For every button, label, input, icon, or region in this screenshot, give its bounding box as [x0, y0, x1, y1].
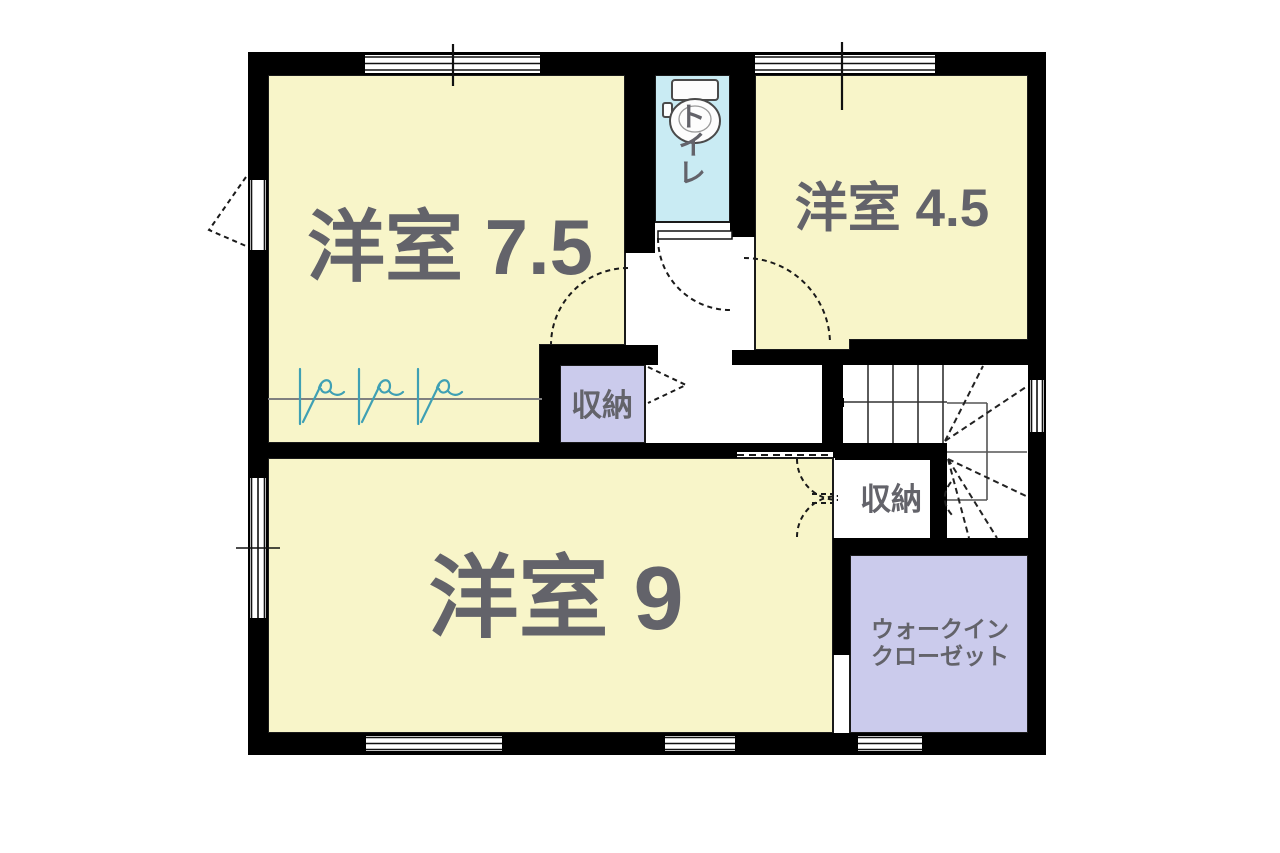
- wall-stair-top: [732, 350, 1046, 365]
- label-wic-line1: ウォークイン: [871, 616, 1009, 642]
- floorplan-drawing: [0, 0, 1280, 853]
- wall-mid-upper: [248, 443, 852, 452]
- toilet-door-panel: [658, 231, 732, 239]
- label-wic-line2: クローゼット: [871, 643, 1009, 669]
- wall-wic-left: [833, 555, 850, 655]
- label-toilet: トイレ: [672, 102, 708, 222]
- wall-left: [248, 52, 268, 755]
- floorplan-canvas: 洋室 7.5 洋室 4.5 洋室 9 トイレ 収納 収納 ウォークイン クローゼ…: [0, 0, 1280, 853]
- casement-window-triangle: [209, 177, 246, 246]
- label-storage-1: 収納: [556, 388, 648, 424]
- wall-mid-lower-left: [248, 452, 737, 458]
- wall-wic-top: [833, 538, 1046, 555]
- label-room-4-5: 洋室 4.5: [752, 179, 1032, 239]
- window-bottom-wic: [858, 736, 922, 751]
- label-room-9: 洋室 9: [350, 546, 762, 652]
- window-bottom-room9-left: [366, 736, 502, 751]
- label-storage-2: 収納: [848, 483, 934, 517]
- label-walk-in-closet: ウォークイン クローゼット: [850, 616, 1030, 672]
- window-bottom-room9-right: [665, 736, 735, 751]
- stair-rail-post: [835, 398, 844, 407]
- window-right-staircase: [1030, 380, 1044, 432]
- label-room-7-5: 洋室 7.5: [258, 200, 642, 294]
